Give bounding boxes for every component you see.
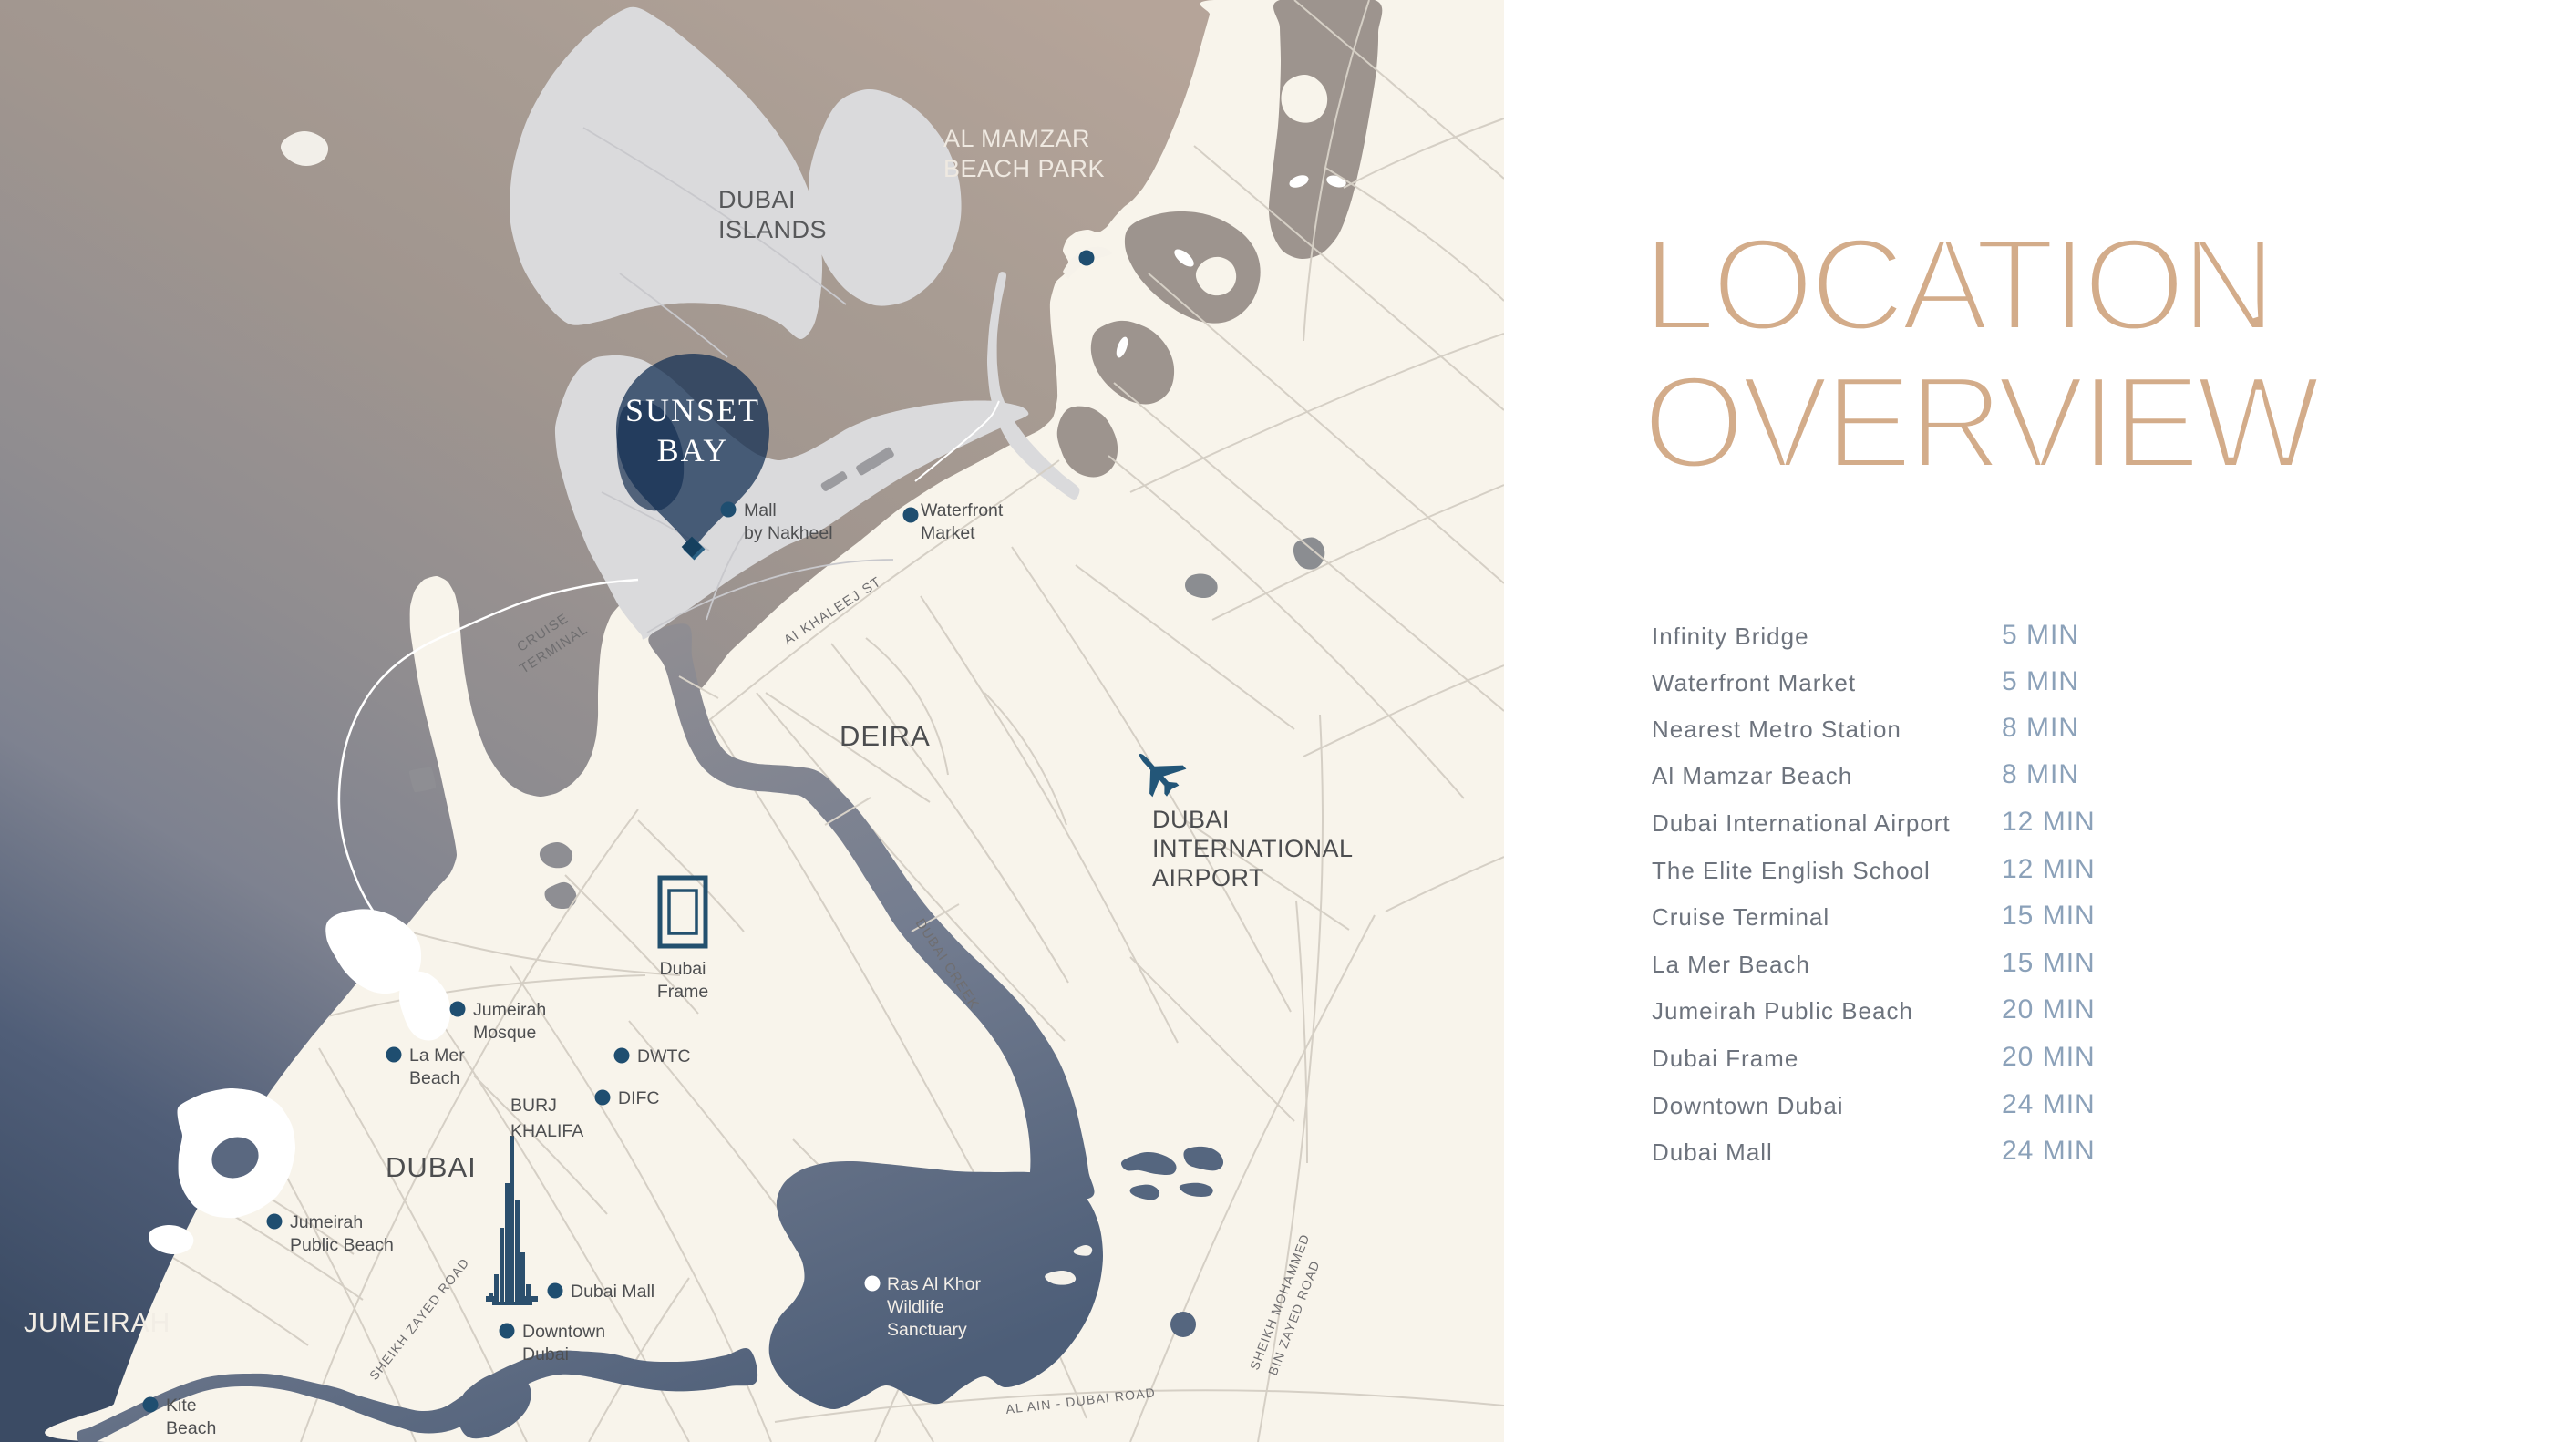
svg-text:Downtown: Downtown: [522, 1322, 605, 1342]
svg-text:Frame: Frame: [657, 982, 708, 1002]
svg-text:Ras Al Khor: Ras Al Khor: [887, 1274, 981, 1294]
svg-text:La Mer: La Mer: [409, 1045, 465, 1066]
svg-text:Public Beach: Public Beach: [290, 1235, 394, 1255]
svg-text:Market: Market: [921, 523, 975, 543]
svg-text:Mall: Mall: [744, 500, 777, 520]
svg-text:DIFC: DIFC: [618, 1088, 660, 1108]
svg-text:DUBAI: DUBAI: [1152, 806, 1230, 833]
svg-text:BEACH PARK: BEACH PARK: [943, 155, 1105, 182]
svg-text:Mosque: Mosque: [473, 1023, 536, 1043]
svg-text:SUNSET: SUNSET: [625, 392, 760, 428]
svg-text:BAY: BAY: [657, 432, 729, 469]
svg-text:Dubai: Dubai: [522, 1344, 569, 1365]
svg-text:AL MAMZAR: AL MAMZAR: [943, 125, 1090, 152]
svg-text:Wildlife: Wildlife: [887, 1297, 944, 1317]
svg-text:DUBAI: DUBAI: [386, 1151, 477, 1183]
svg-text:Jumeirah: Jumeirah: [290, 1212, 363, 1232]
svg-text:DEIRA: DEIRA: [840, 720, 931, 752]
svg-text:DUBAI: DUBAI: [718, 186, 796, 213]
svg-text:BURJ: BURJ: [510, 1096, 557, 1116]
svg-text:Dubai Mall: Dubai Mall: [571, 1282, 654, 1302]
svg-text:by Nakheel: by Nakheel: [744, 523, 833, 543]
svg-text:AIRPORT: AIRPORT: [1152, 864, 1264, 891]
svg-text:KHALIFA: KHALIFA: [510, 1121, 583, 1141]
svg-text:Beach: Beach: [409, 1068, 459, 1088]
svg-text:INTERNATIONAL: INTERNATIONAL: [1152, 835, 1354, 862]
svg-text:Sanctuary: Sanctuary: [887, 1320, 967, 1340]
svg-text:Beach: Beach: [166, 1418, 216, 1438]
svg-text:ISLANDS: ISLANDS: [718, 216, 827, 243]
svg-text:Waterfront: Waterfront: [921, 500, 1004, 520]
svg-text:JUMEIRAH: JUMEIRAH: [24, 1308, 170, 1338]
svg-text:Jumeirah: Jumeirah: [473, 1000, 546, 1020]
svg-text:DWTC: DWTC: [637, 1046, 690, 1066]
svg-text:Kite: Kite: [166, 1396, 197, 1416]
svg-text:Dubai: Dubai: [660, 959, 706, 979]
